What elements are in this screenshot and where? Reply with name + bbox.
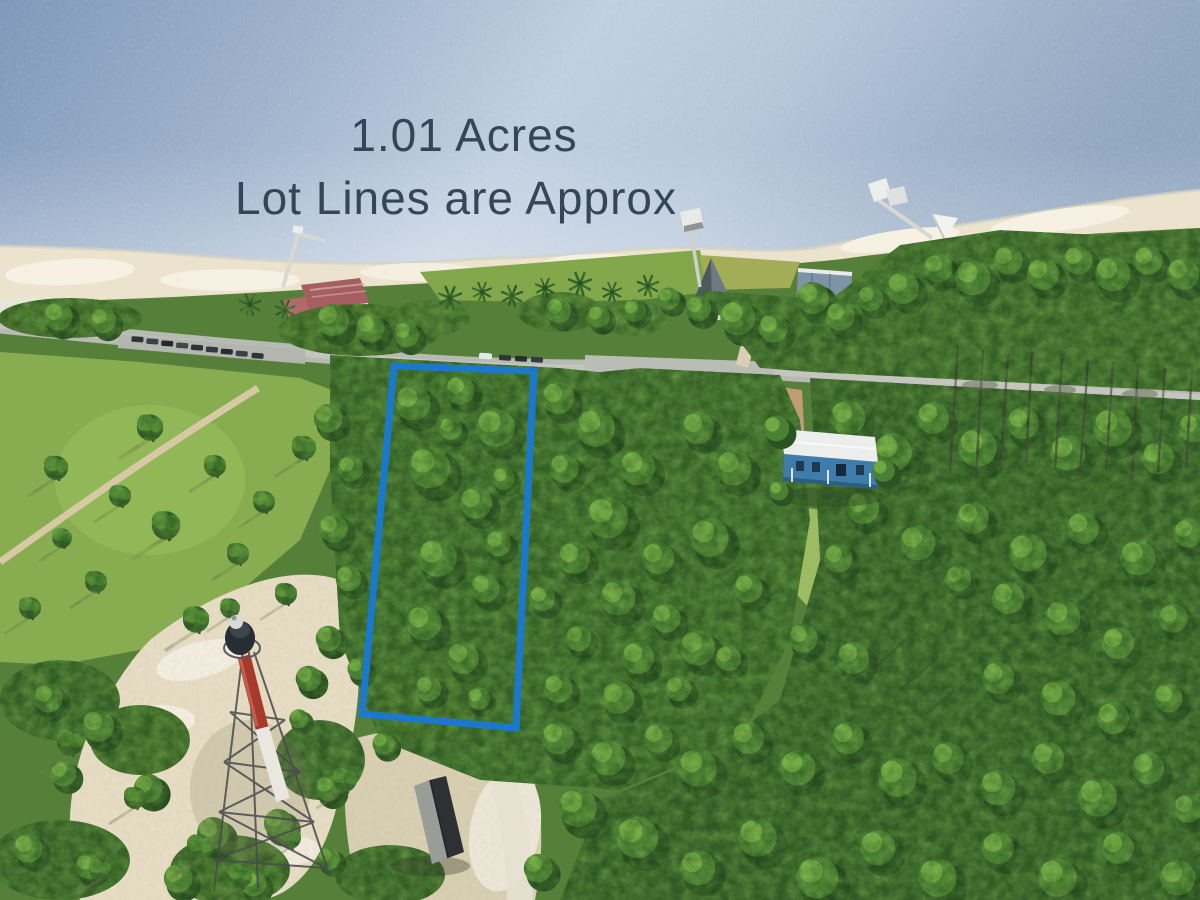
aerial-photo: 1.01 Acres Lot Lines are Approx [0,0,1200,900]
lot-lines-disclaimer: Lot Lines are Approx [235,172,677,224]
acreage-label: 1.01 Acres [350,109,577,161]
aerial-photo-canvas: 1.01 Acres Lot Lines are Approx [0,0,1200,900]
